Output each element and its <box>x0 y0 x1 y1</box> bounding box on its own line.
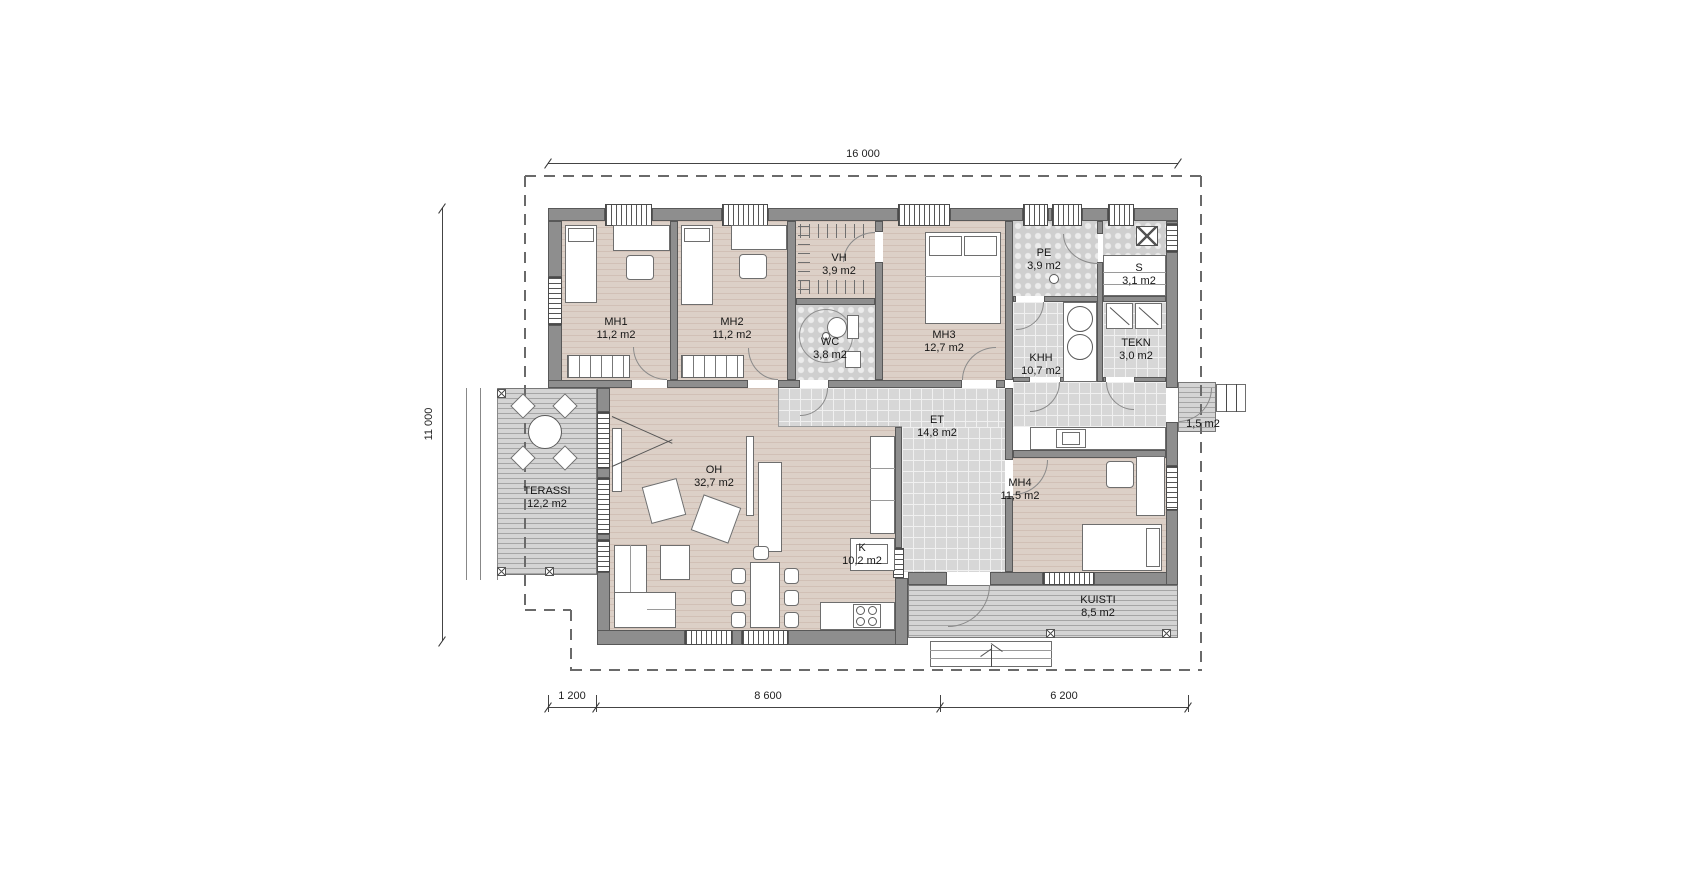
mh4-desk <box>1136 456 1165 516</box>
niche-basin-bowl <box>1062 432 1080 445</box>
room-label-et: ET14,8 m2 <box>917 414 957 440</box>
mh2-pillow <box>684 228 710 242</box>
wall-segment <box>1166 510 1178 585</box>
wall-segment <box>548 380 632 388</box>
wall-segment <box>1166 422 1178 466</box>
wall-segment <box>1134 208 1178 221</box>
wall-segment <box>1134 377 1166 382</box>
wall-segment <box>768 208 898 221</box>
stoop-steps <box>1216 384 1246 412</box>
dimension-label-top: 16 000 <box>846 148 880 160</box>
sofa-cushion-line <box>630 545 631 592</box>
dining-chair <box>731 568 746 584</box>
terassi-post <box>497 389 506 398</box>
oh-divider-shelf <box>746 436 754 516</box>
mh4-chair <box>1106 461 1134 488</box>
door-opening <box>800 380 828 388</box>
stoop-step-line <box>1236 384 1237 412</box>
wall-segment <box>875 221 883 232</box>
dimension-line-bottom <box>548 707 1188 708</box>
wall-segment <box>597 630 685 645</box>
wall-segment <box>788 630 908 645</box>
window <box>722 204 768 226</box>
terassi-pergola <box>466 388 498 580</box>
cabinet-line <box>870 468 895 469</box>
wall-segment <box>1005 221 1013 380</box>
wall-segment <box>1166 252 1178 388</box>
pe-floor-drain <box>1049 274 1059 284</box>
terassi-table <box>528 415 562 449</box>
dining-chair <box>784 612 799 628</box>
window <box>548 277 562 325</box>
tekn-electrical-panel <box>1135 303 1162 329</box>
mh1-wardrobe <box>567 355 630 378</box>
window <box>1023 204 1048 226</box>
door-opening <box>962 380 996 388</box>
sauna-stove <box>1136 226 1158 246</box>
stove-burner <box>868 617 877 626</box>
stove-burner <box>856 617 865 626</box>
door-opening <box>632 380 667 388</box>
khh-washer <box>1067 306 1093 332</box>
khh-dryer <box>1067 334 1093 360</box>
wall-segment <box>796 298 875 305</box>
dimension-line-top <box>548 163 1178 164</box>
kuisti-post <box>1046 629 1055 638</box>
dimension-label-left: 11 000 <box>423 408 435 441</box>
oh-sofa <box>614 592 676 628</box>
floor-edge-line <box>778 426 902 427</box>
mh2-desk <box>731 225 787 250</box>
wall-segment <box>908 572 947 585</box>
vh-shelves <box>798 226 810 294</box>
stove-burner <box>856 606 865 615</box>
wc-basin <box>845 351 861 368</box>
cabinet-line <box>870 500 895 501</box>
dimension-label-bottom-1: 1 200 <box>558 690 586 702</box>
room-label-s: S3,1 m2 <box>1122 262 1156 288</box>
room-label-mh3: MH312,7 m2 <box>924 329 964 355</box>
room-label-tekn: TEKN3,0 m2 <box>1119 337 1153 363</box>
terassi-post <box>545 567 554 576</box>
dining-chair <box>784 568 799 584</box>
window <box>605 204 652 226</box>
wall-segment <box>548 208 605 221</box>
room-label-oh: OH32,7 m2 <box>694 464 734 490</box>
kuisti-post <box>1162 629 1171 638</box>
mh3-pillow <box>964 236 997 256</box>
side-door-opening <box>1166 388 1178 422</box>
door-opening <box>875 232 883 262</box>
kitchen-tall-cabinets <box>870 436 895 534</box>
room-label-k: K10,2 m2 <box>842 542 882 568</box>
wall-segment <box>1103 296 1166 302</box>
dining-table <box>750 562 780 628</box>
dimension-label-bottom-2: 8 600 <box>754 690 782 702</box>
wall-segment <box>787 221 796 380</box>
wall-segment <box>1082 208 1108 221</box>
room-label-mh2: MH211,2 m2 <box>713 316 752 342</box>
wall-segment <box>1005 388 1013 460</box>
boundary-dashed-step-h <box>525 609 571 611</box>
terrace-door <box>597 412 610 468</box>
dimension-line-left <box>442 208 443 641</box>
boundary-dashed-top <box>525 175 1202 177</box>
window <box>1052 204 1082 226</box>
room-label-khh: KHH10,7 m2 <box>1021 352 1061 378</box>
door-opening <box>748 380 778 388</box>
window <box>1166 466 1178 510</box>
mh2-wardrobe <box>681 355 744 378</box>
wall-segment <box>828 380 962 388</box>
terrace-door <box>597 478 610 534</box>
mh1-pillow <box>568 228 594 242</box>
room-label-kuisti: KUISTI8,5 m2 <box>1080 594 1115 620</box>
wall-segment <box>778 380 800 388</box>
dining-chair <box>753 546 769 560</box>
wall-segment <box>732 630 742 645</box>
front-door-opening <box>947 572 990 585</box>
wall-segment <box>875 262 883 380</box>
kitchen-island <box>758 462 782 552</box>
boundary-dashed-left <box>524 176 526 610</box>
wall-segment <box>990 572 1043 585</box>
stoop-step-line <box>1226 384 1227 412</box>
wall-segment <box>950 208 1023 221</box>
floor-et-entry <box>902 427 1005 572</box>
wall-segment <box>597 388 610 412</box>
room-label-vh: VH3,9 m2 <box>822 252 856 278</box>
window <box>1108 204 1134 226</box>
room-label-wc: WC3,8 m2 <box>813 336 847 362</box>
window <box>1043 572 1094 585</box>
wall-segment <box>895 427 902 548</box>
oh-side-table <box>660 545 690 580</box>
dining-chair <box>731 590 746 606</box>
floor-plan: MH111,2 m2 MH211,2 m2 VH3,9 m2 WC3,8 m2 … <box>0 0 1684 881</box>
hall-niche <box>1030 427 1166 450</box>
wall-segment <box>667 380 748 388</box>
wall-segment <box>548 325 562 388</box>
room-label-pe: PE3,9 m2 <box>1027 247 1061 273</box>
wall-segment <box>548 221 562 277</box>
wall-segment <box>597 468 610 478</box>
wall-segment <box>996 380 1005 388</box>
boundary-dashed-step-v <box>570 610 572 671</box>
window <box>685 630 732 645</box>
oh-tv-bench <box>612 428 622 492</box>
window <box>1166 224 1178 252</box>
floor-edge-line <box>778 388 779 427</box>
tekn-electrical-panel <box>1106 303 1133 329</box>
mh4-pillow <box>1146 528 1160 567</box>
room-label-mh1: MH111,2 m2 <box>597 316 636 342</box>
mh3-bed-line <box>925 276 1001 277</box>
wall-segment <box>670 221 678 380</box>
mh1-chair <box>626 255 654 280</box>
wc-toilet-tank <box>847 315 859 339</box>
window <box>742 630 788 645</box>
window <box>898 204 950 226</box>
window <box>597 540 610 572</box>
vh-shelves <box>800 280 870 294</box>
stove-burner <box>868 606 877 615</box>
wall-segment <box>652 208 722 221</box>
room-label-stoop: 1,5 m2 <box>1186 418 1220 431</box>
room-label-terassi: TERASSI12,2 m2 <box>523 485 570 511</box>
wall-segment <box>1005 496 1013 572</box>
terassi-post <box>497 567 506 576</box>
dining-chair <box>784 590 799 606</box>
room-label-mh4: MH411,5 m2 <box>1001 477 1040 503</box>
mh3-pillow <box>929 236 962 256</box>
dimension-label-bottom-3: 6 200 <box>1050 690 1078 702</box>
wall-segment <box>895 578 908 645</box>
sofa-cushion-line <box>647 609 676 610</box>
mh2-chair <box>739 254 767 279</box>
mh1-desk <box>613 225 670 251</box>
wall-segment <box>1097 221 1103 234</box>
dining-chair <box>731 612 746 628</box>
wc-toilet <box>827 317 847 338</box>
boundary-dashed-bottom <box>571 669 1202 671</box>
